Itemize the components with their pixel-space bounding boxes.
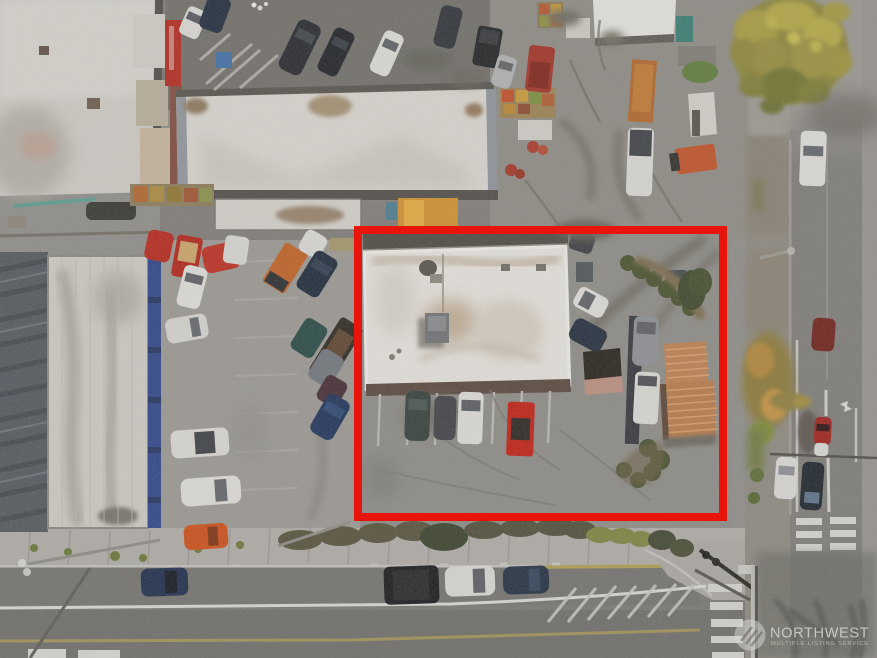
svg-text:NORTHWEST: NORTHWEST (770, 626, 869, 642)
svg-text:MULTIPLE LISTING SERVICE: MULTIPLE LISTING SERVICE (771, 641, 869, 647)
